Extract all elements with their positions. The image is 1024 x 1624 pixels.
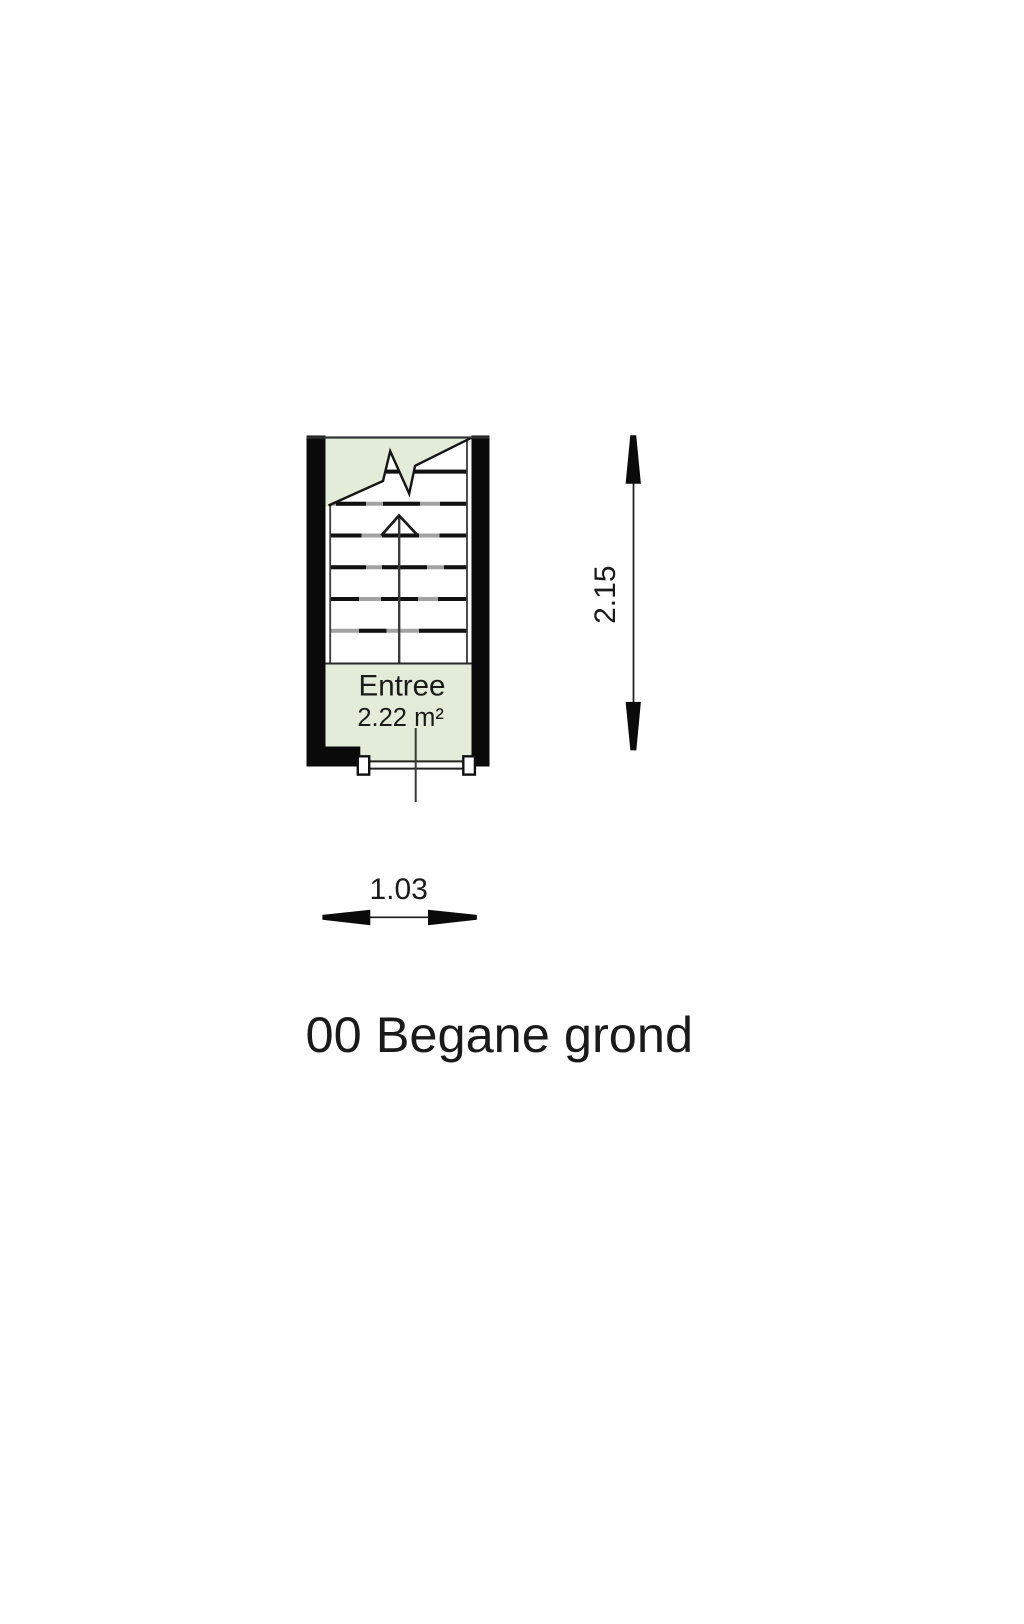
svg-text:00 Begane grond: 00 Begane grond [306,1006,694,1063]
svg-text:2.22 m²: 2.22 m² [357,704,443,732]
svg-text:1.03: 1.03 [370,873,428,906]
svg-text:2.15: 2.15 [589,566,622,624]
svg-text:Entree: Entree [359,669,446,702]
